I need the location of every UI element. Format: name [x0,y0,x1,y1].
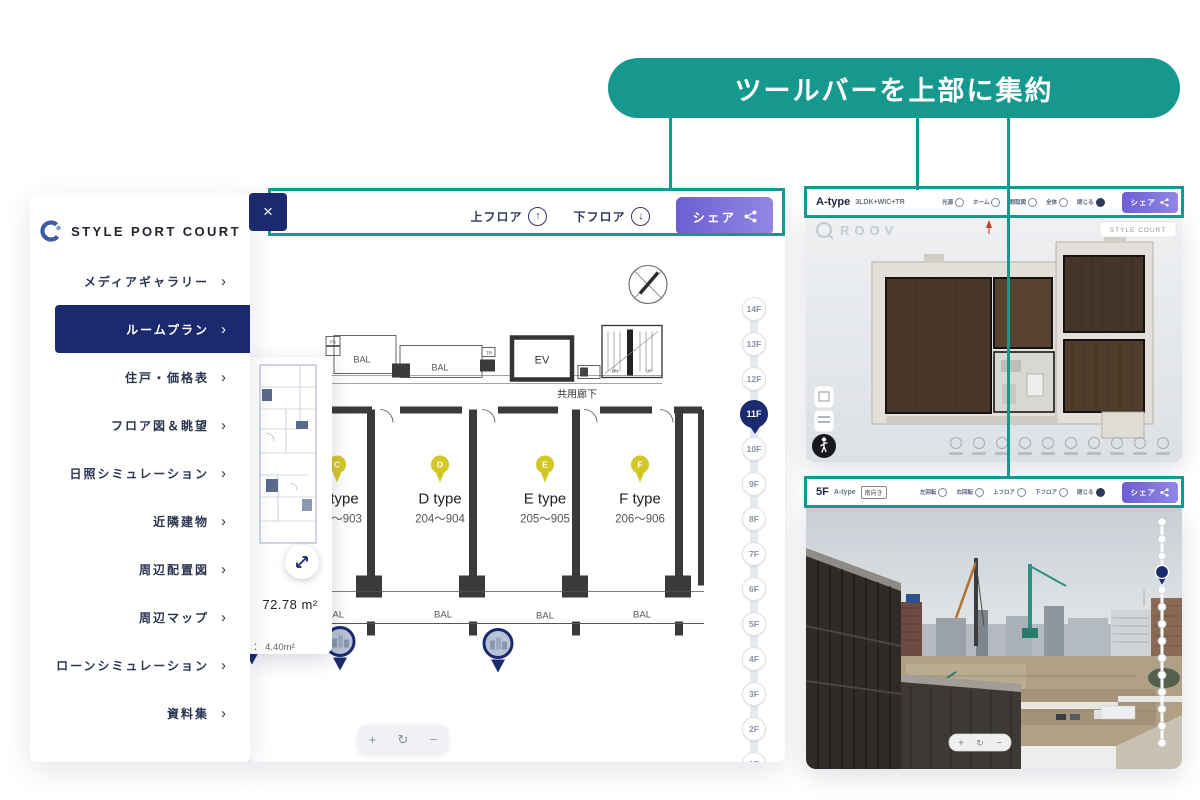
sidebar-item-sunlight-simulation[interactable]: 日照シミュレーション› [30,449,250,497]
connector-line [916,118,919,190]
svg-text:EV: EV [535,355,550,367]
tool-floor-down[interactable]: 下フロア [1035,488,1068,497]
sidebar-item-loan-simulation[interactable]: ローンシミュレーション› [30,641,250,689]
sidebar-item-price-list[interactable]: 住戸・価格表› [30,353,250,401]
zoom-controls: + ↻ − [358,725,448,753]
sidebar: STYLE PORT COURT メディアギャラリー› ルームプラン› 住戸・価… [30,195,250,762]
chevron-right-icon: › [221,322,226,337]
svg-text:E: E [542,460,548,470]
reset-view-button[interactable]: ↻ [398,733,409,746]
sidebar-item-room-plan[interactable]: ルームプラン› [55,305,250,353]
floor-node-1f[interactable]: 1F [742,752,766,762]
floorplan-viewer: 上フロア ↑ 下フロア ↓ シェア [250,195,785,762]
arrow-down-circle-icon: ↓ [631,207,650,226]
svg-text:+: + [958,738,964,749]
svg-text:BAL: BAL [353,355,370,365]
zoom-out-button[interactable]: − [430,733,438,746]
svg-text:C: C [334,460,340,470]
floor-selector: 14F 13F 12F 11F 10F 9F 8F 7F 6F 5F 4F 3F… [736,297,772,762]
svg-text:BAL: BAL [434,610,452,621]
svg-text:ROOV: ROOV [840,223,898,238]
svg-text:BAL: BAL [633,610,651,621]
floor-node-2f[interactable]: 2F [742,717,766,741]
sidebar-item-documents[interactable]: 資料集› [30,689,250,737]
tool-home[interactable]: ホーム [973,198,1000,207]
share-button[interactable]: シェア [676,197,773,235]
zoom-in-button[interactable]: + [369,733,377,746]
app-title: STYLE PORT COURT [71,224,241,239]
svg-text:E type: E type [524,491,567,508]
unit-thumbnail-card[interactable]: 72.78 m² ： 4.40m² [250,357,332,654]
chevron-right-icon: › [221,610,226,625]
floorplan-canvas[interactable]: 共用廊下 PS TR BAL BAL EV [250,237,785,762]
chevron-right-icon: › [221,514,226,529]
view-photo-toolbar: 5F A-type 南向き 左回転 右回転 上フロア 下フロア 閉じる シェア [806,478,1182,506]
unit-mini-plan [256,363,326,548]
close-circle-icon [1096,488,1105,497]
floor-node-7f[interactable]: 7F [742,542,766,566]
unit-type-label: A-type [834,489,856,496]
plan-icon [1028,198,1037,207]
apartment-3d-model [872,234,1153,438]
svg-text:F: F [637,460,642,470]
close-circle-icon [1096,198,1105,207]
close-button[interactable]: × [249,193,287,231]
floor-up-button[interactable]: 上フロア ↑ [470,207,547,226]
svg-text:TR: TR [486,351,493,356]
rotate-left-icon [938,488,947,497]
svg-text:206〜906: 206〜906 [615,514,665,526]
view-marker[interactable] [484,630,512,673]
share-button-small[interactable]: シェア [1122,482,1179,503]
stairs: DN UP [602,326,662,378]
tool-rotate-left[interactable]: 左回転 [920,488,948,497]
arrow-up-circle-icon: ↑ [528,207,547,226]
unit-pin-f[interactable]: F [631,456,649,483]
unit-pin-d[interactable]: D [431,456,449,483]
unit-pin-e[interactable]: E [536,456,554,483]
sidebar-item-floor-view[interactable]: フロア図＆眺望› [30,401,250,449]
walk-mode-button[interactable] [812,434,836,458]
connector-line [1007,118,1010,478]
tool-light[interactable]: 光源 [942,198,964,207]
floor-node-13f[interactable]: 13F [742,332,766,356]
floor-node-12f[interactable]: 12F [742,367,766,391]
unit-type-layout: 3LDK+WIC+TR [855,199,904,206]
floor-node-11f-active[interactable]: 11F [740,400,768,428]
sidebar-item-site-plan[interactable]: 周辺配置図› [30,545,250,593]
expand-button[interactable] [285,545,319,579]
share-icon [744,210,757,223]
roomplan3d-toolbar: A-type 3LDK+WIC+TR 光源 ホーム 間取図 全体 閉じる シェア [806,188,1182,216]
svg-text:D type: D type [418,491,461,508]
chevron-right-icon: › [221,658,226,673]
floor-node-6f[interactable]: 6F [742,577,766,601]
svg-text:F type: F type [619,491,661,508]
view-photo[interactable]: + ↻ − [806,506,1182,769]
page: ツールバーを上部に集約 STYLE PORT COURT メディアギャラリー› … [0,0,1200,800]
tool-madori[interactable]: 間取図 [1009,198,1037,207]
arrow-up-circle-icon [1017,488,1026,497]
svg-text:共用廊下: 共用廊下 [557,388,597,401]
roomplan3d-tools: 光源 ホーム 間取図 全体 閉じる シェア [942,192,1178,213]
share-button-small[interactable]: シェア [1122,192,1179,213]
chevron-right-icon: › [221,466,226,481]
expand-icon [294,554,310,570]
chevron-right-icon: › [221,370,226,385]
style-court-badge: STYLE COURT [1100,222,1176,237]
chevron-right-icon: › [221,706,226,721]
floor-node-8f[interactable]: 8F [742,507,766,531]
floor-node-9f[interactable]: 9F [742,472,766,496]
view-photo-tools: 左回転 右回転 上フロア 下フロア 閉じる シェア [920,482,1178,503]
tool-rotate-right[interactable]: 右回転 [956,488,984,497]
sidebar-menu: メディアギャラリー› ルームプラン› 住戸・価格表› フロア図＆眺望› 日照シミ… [30,257,250,737]
svg-text:↻: ↻ [976,738,984,748]
annotation-banner: ツールバーを上部に集約 [608,58,1180,118]
connector-line [669,118,672,190]
floor-node-4f[interactable]: 4F [742,647,766,671]
floor-node-14f[interactable]: 14F [742,297,766,321]
sidebar-item-area-map[interactable]: 周辺マップ› [30,593,250,641]
floor-node-10f[interactable]: 10F [742,437,766,461]
svg-text:UP: UP [646,369,652,374]
svg-text:STYLE COURT: STYLE COURT [1110,227,1166,234]
arrow-down-circle-icon [1059,488,1068,497]
floor-node-3f[interactable]: 3F [742,682,766,706]
compass-icon [629,266,667,304]
tool-floor-up[interactable]: 上フロア [993,488,1026,497]
unit-type-title: A-type [816,196,850,208]
tool-close[interactable]: 閉じる [1077,198,1105,207]
svg-text:204〜904: 204〜904 [415,514,465,526]
floor-node-5f[interactable]: 5F [742,612,766,636]
chevron-right-icon: › [221,562,226,577]
share-icon [1160,198,1169,207]
tool-overview[interactable]: 全体 [1046,198,1068,207]
svg-text:D: D [437,460,443,470]
light-icon [955,198,964,207]
sidebar-item-media-gallery[interactable]: メディアギャラリー› [30,257,250,305]
svg-text:DN: DN [612,369,619,374]
svg-text:−: − [996,738,1002,749]
home-icon [991,198,1000,207]
share-icon [1160,488,1169,497]
svg-text:BAL: BAL [536,611,554,622]
app-logo: STYLE PORT COURT [30,219,250,243]
grid-icon [1059,198,1068,207]
chevron-right-icon: › [221,418,226,433]
rotate-right-icon [975,488,984,497]
svg-text:PS: PS [330,340,336,345]
photo-zoom-controls[interactable]: + ↻ − [949,734,1011,751]
unit-sub-area: ： 4.40m² [253,639,295,653]
chevron-right-icon: › [221,274,226,289]
unit-area: 72.78 m² [250,597,332,612]
orientation-badge: 南向き [861,486,887,499]
logo-icon [39,219,63,243]
floorplan-toolbar: 上フロア ↑ 下フロア ↓ シェア [250,195,785,237]
sidebar-item-nearby-buildings[interactable]: 近隣建物› [30,497,250,545]
floor-down-button[interactable]: 下フロア ↓ [573,207,650,226]
svg-text:BAL: BAL [431,363,448,373]
svg-text:205〜905: 205〜905 [520,514,570,526]
roomplan3d-view[interactable]: ROOV STYLE COURT [806,216,1182,462]
floor-title: 5F [816,486,829,498]
tool-close[interactable]: 閉じる [1077,488,1105,497]
